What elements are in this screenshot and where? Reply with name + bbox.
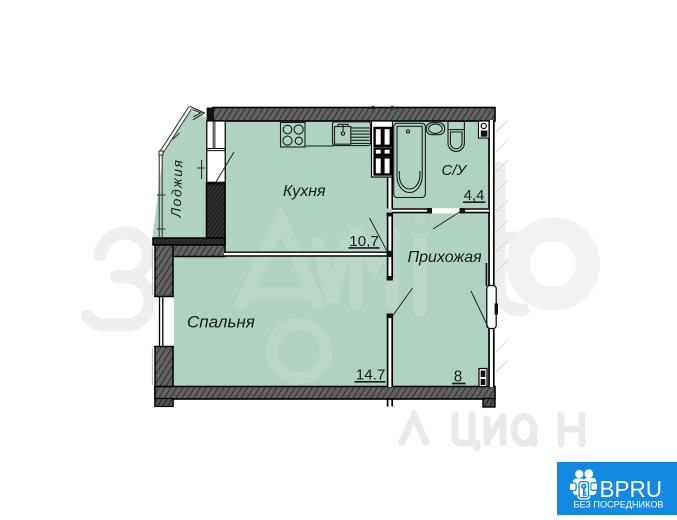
svg-text:С/У: С/У: [442, 162, 468, 179]
svg-text:Кухня: Кухня: [283, 183, 326, 200]
svg-text:BPRU: BPRU: [600, 476, 663, 502]
svg-text:БЕЗ ПОСРЕДНИКОВ: БЕЗ ПОСРЕДНИКОВ: [574, 499, 664, 510]
svg-text:Прихожая: Прихожая: [408, 249, 483, 266]
svg-text:Лоджия: Лоджия: [168, 158, 185, 218]
svg-text:Спальня: Спальня: [187, 313, 255, 332]
